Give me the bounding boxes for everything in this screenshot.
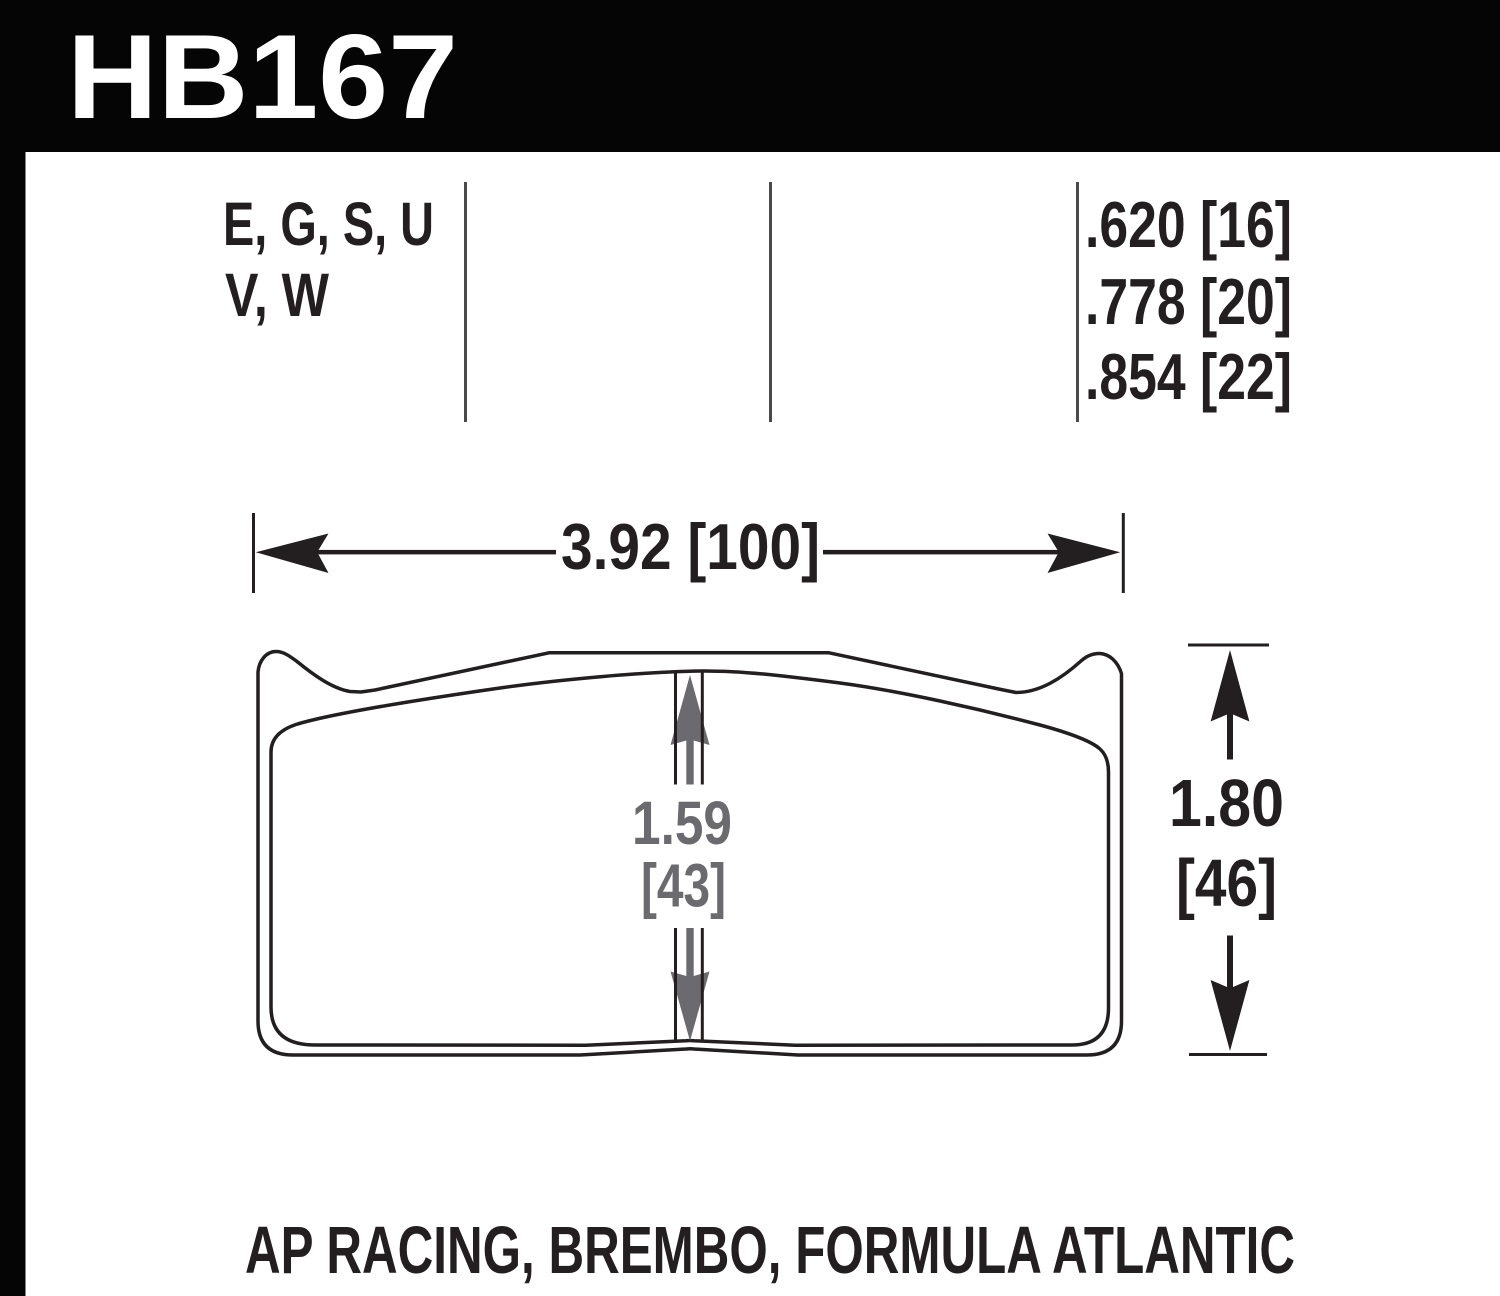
svg-text:[46]: [46] [1176, 846, 1277, 921]
svg-text:1.80: 1.80 [1169, 766, 1284, 841]
svg-text:.620 [16]: .620 [16] [1085, 188, 1292, 261]
svg-text:E, G, S, U: E, G, S, U [223, 190, 434, 258]
svg-text:[43]: [43] [641, 852, 726, 920]
svg-text:3.92 [100]: 3.92 [100] [561, 510, 820, 583]
svg-text:V, W: V, W [225, 261, 329, 329]
svg-text:.778 [20]: .778 [20] [1085, 265, 1292, 338]
svg-text:.854 [22]: .854 [22] [1085, 340, 1292, 413]
svg-text:1.59: 1.59 [632, 789, 732, 857]
svg-text:AP RACING, BREMBO, FORMULA ATL: AP RACING, BREMBO, FORMULA ATLANTIC [245, 1213, 1295, 1288]
svg-text:HB167: HB167 [67, 10, 458, 144]
